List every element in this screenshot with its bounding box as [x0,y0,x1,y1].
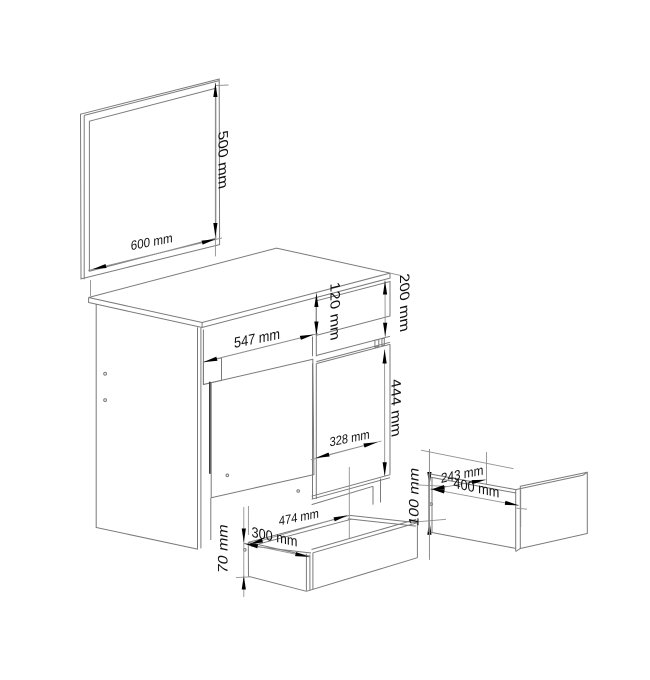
svg-text:120 mm: 120 mm [327,281,342,343]
svg-text:500 mm: 500 mm [215,129,230,191]
svg-text:444 mm: 444 mm [388,377,403,439]
svg-text:100 mm: 100 mm [406,466,422,527]
svg-text:200 mm: 200 mm [396,272,411,334]
svg-text:70 mm: 70 mm [216,523,232,575]
